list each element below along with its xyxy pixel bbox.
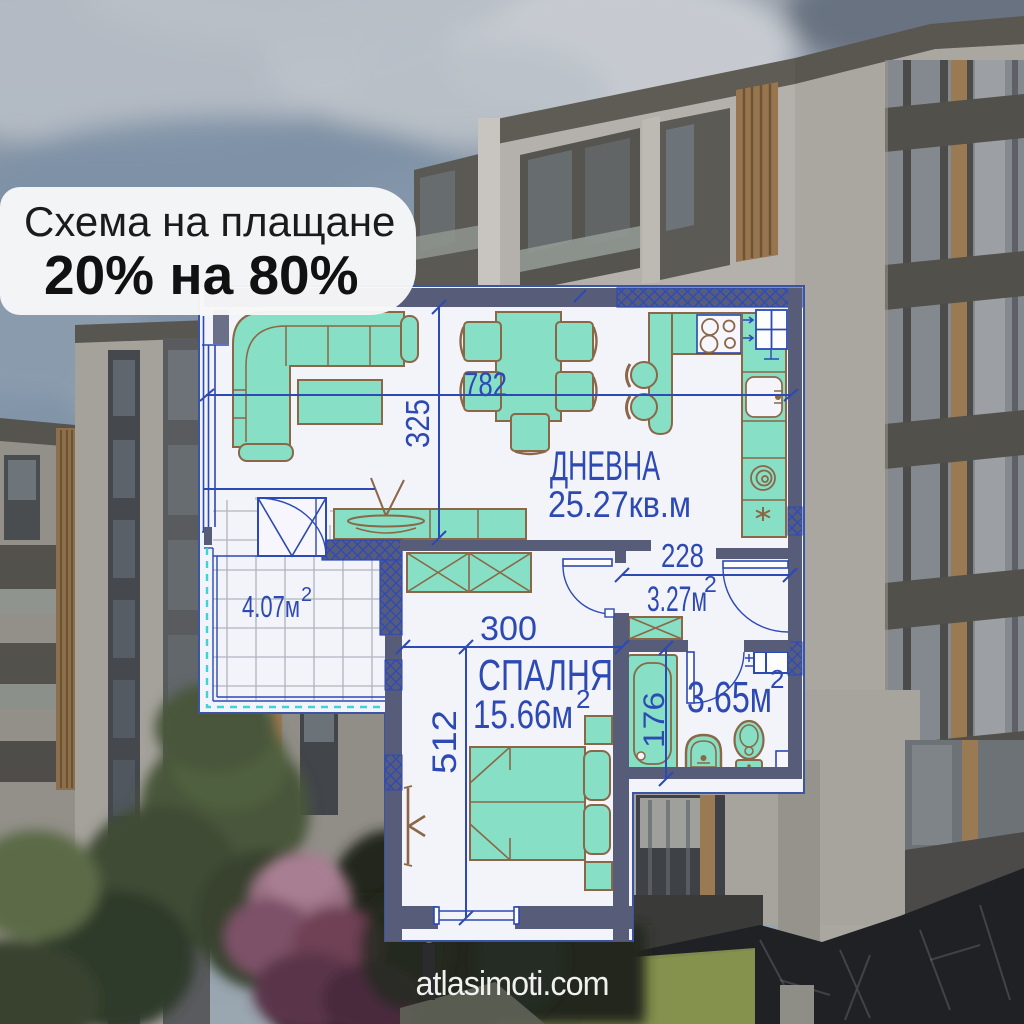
svg-text:782: 782 xyxy=(464,366,507,404)
svg-text:228: 228 xyxy=(661,537,704,574)
svg-text:2: 2 xyxy=(704,571,717,597)
svg-text:2: 2 xyxy=(576,684,590,714)
svg-text:3.65м: 3.65м xyxy=(687,673,772,722)
svg-text:2: 2 xyxy=(770,664,784,694)
svg-text:15.66м: 15.66м xyxy=(473,693,573,737)
svg-text:325: 325 xyxy=(399,399,436,448)
svg-text:176: 176 xyxy=(638,692,671,748)
svg-text:ДНЕВНА: ДНЕВНА xyxy=(550,442,660,489)
svg-text:300: 300 xyxy=(480,610,537,648)
svg-text:2: 2 xyxy=(301,584,312,606)
svg-text:512: 512 xyxy=(426,710,464,774)
svg-text:25.27кв.м: 25.27кв.м xyxy=(548,484,691,525)
svg-text:3.27м: 3.27м xyxy=(647,580,707,619)
svg-text:4.07м: 4.07м xyxy=(242,589,300,624)
